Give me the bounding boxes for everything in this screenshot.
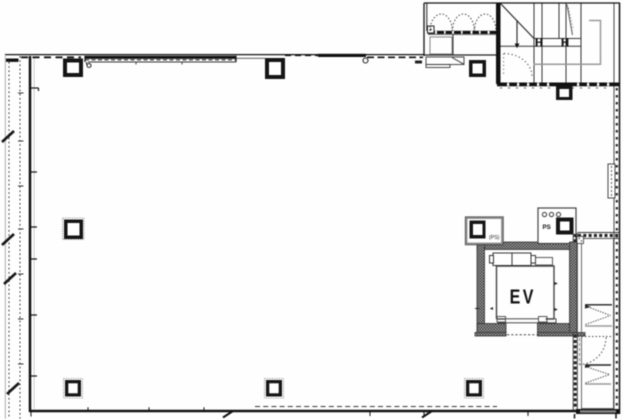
svg-text:(PS): (PS) xyxy=(489,235,500,241)
svg-text:EV: EV xyxy=(510,284,536,307)
svg-text:PS: PS xyxy=(543,224,551,231)
